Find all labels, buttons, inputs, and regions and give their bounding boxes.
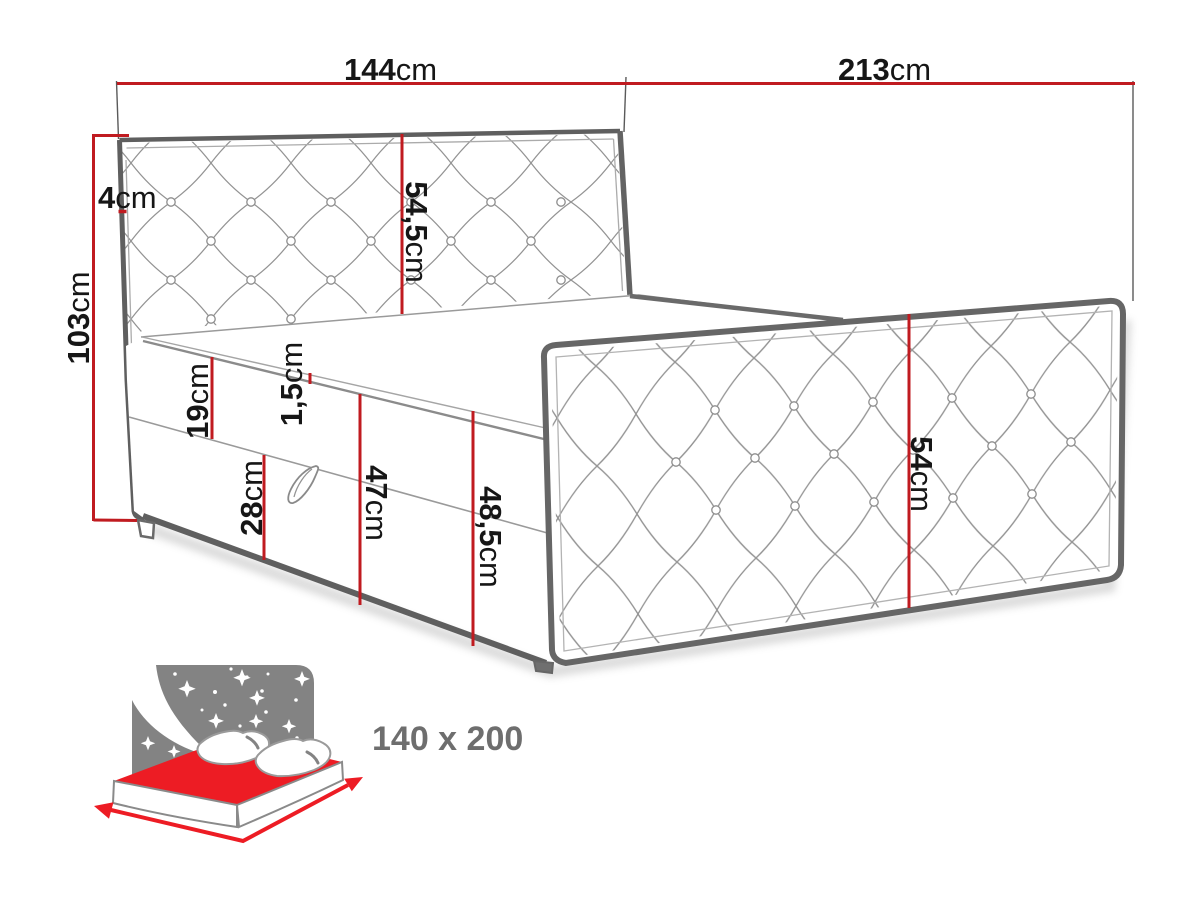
svg-text:103cm: 103cm [61,271,96,364]
svg-text:140 x 200: 140 x 200 [372,720,523,758]
svg-text:19cm: 19cm [180,363,215,439]
svg-text:213cm: 213cm [838,52,931,87]
svg-text:28cm: 28cm [234,460,269,536]
svg-text:4cm: 4cm [98,180,157,215]
svg-text:1,5cm: 1,5cm [274,342,309,426]
svg-text:48,5cm: 48,5cm [473,486,508,588]
svg-text:54,5cm: 54,5cm [399,181,434,283]
svg-text:54cm: 54cm [904,436,939,512]
svg-text:47cm: 47cm [359,465,394,541]
svg-text:144cm: 144cm [344,52,437,87]
